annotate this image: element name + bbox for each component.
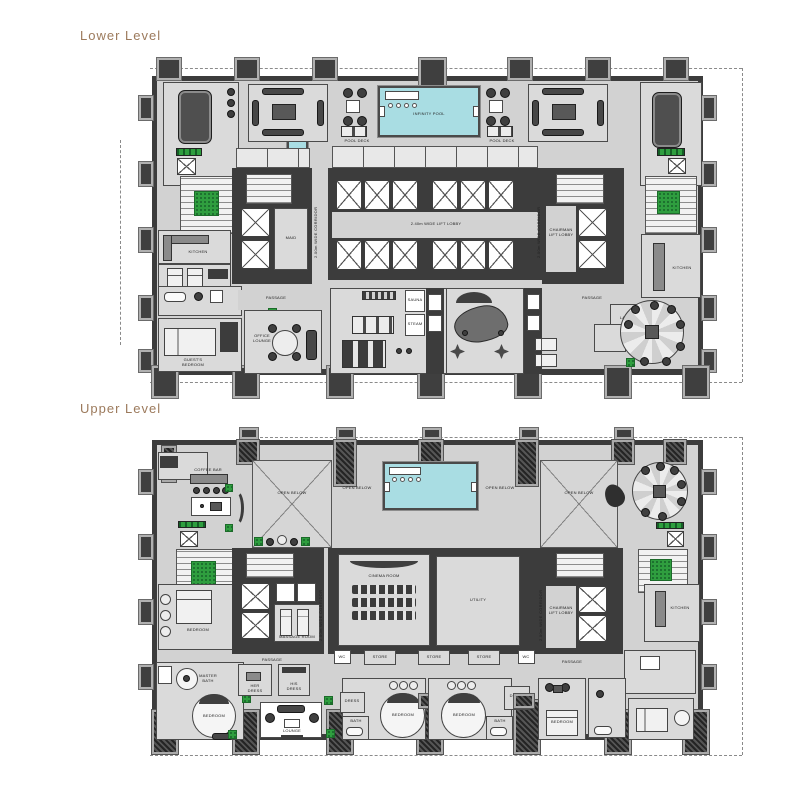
lounge-chair <box>343 116 353 126</box>
side-table <box>160 610 171 621</box>
pilaster-west <box>139 96 153 120</box>
boundary-dash-left <box>120 140 121 345</box>
lounge-table <box>552 104 576 120</box>
lounge-chair <box>486 116 496 126</box>
kitchen-label: KITCHEN <box>189 250 208 255</box>
stool <box>227 88 235 96</box>
store-label: STORE <box>477 655 492 660</box>
chairman-lobby-label: CHAIRMAN LIFT LOBBY <box>549 228 574 238</box>
pilaster-east <box>702 665 716 689</box>
guest-bedroom-label: GUEST'S BEDROOM <box>182 358 204 368</box>
sitting-table <box>653 485 666 498</box>
chair <box>631 305 640 314</box>
office-lounge-label: OFFICE LOUNGE <box>253 334 271 344</box>
bathtub <box>164 292 186 302</box>
shower <box>527 315 540 331</box>
chair <box>292 324 301 333</box>
sofa <box>306 330 317 360</box>
east-suite-room <box>624 650 696 694</box>
shower <box>428 294 442 311</box>
wc-label: WC <box>522 655 529 660</box>
cinema-seats-row <box>352 598 416 607</box>
stool <box>290 538 298 546</box>
pool-steps <box>379 106 385 117</box>
sauna-label: SAUNA <box>408 298 423 303</box>
pilaster-west <box>139 296 153 320</box>
pilaster-west <box>139 665 153 689</box>
chair <box>640 357 649 366</box>
open-below-label: OPEN BELOW <box>343 486 372 491</box>
lounge-chair <box>486 88 496 98</box>
plant <box>225 484 233 492</box>
column <box>313 58 337 80</box>
planter <box>657 148 685 156</box>
core-stair <box>246 553 294 578</box>
column <box>586 58 610 80</box>
bedroom-label: BEDROOM <box>203 714 225 719</box>
side-table <box>277 535 287 545</box>
maid-label: MAID <box>286 236 297 241</box>
kitchen-east <box>641 234 701 298</box>
lounge-chair <box>357 116 367 126</box>
sofa <box>597 100 604 126</box>
boundary-dash-top <box>255 437 742 438</box>
lift <box>241 240 270 269</box>
pool-loungers <box>341 126 367 137</box>
bath-label: BATH <box>350 719 361 724</box>
weight <box>396 348 402 354</box>
pool-steps <box>473 106 479 117</box>
pilaster-east <box>702 296 716 320</box>
chair <box>641 508 650 517</box>
column-cap <box>423 428 441 439</box>
boundary-dash-right <box>742 68 743 382</box>
bedroom-label: BEDROOM <box>392 713 414 718</box>
core-stair <box>556 553 604 578</box>
service-cells <box>332 146 538 168</box>
dress-island <box>246 672 261 681</box>
side-table <box>346 100 360 113</box>
shower <box>428 315 442 332</box>
pilaster-west <box>139 535 153 559</box>
pendant <box>467 681 476 690</box>
boundary-dash-bottom <box>150 755 742 756</box>
pool-jet <box>416 477 421 482</box>
pilaster-east <box>702 96 716 120</box>
cinema-room-label: CINEMA ROOM <box>368 574 399 579</box>
lounge-table <box>272 104 296 120</box>
wc-fixture <box>194 292 203 301</box>
massage-table <box>297 609 309 636</box>
core-stair <box>246 174 292 204</box>
column <box>508 58 532 80</box>
stool <box>193 487 200 494</box>
cinema-seats-row <box>352 585 416 594</box>
lounge-chair <box>500 116 510 126</box>
plant <box>194 191 219 216</box>
coffee-bar-label: COFFEE BAR <box>194 468 222 473</box>
plant <box>626 358 635 367</box>
chair <box>670 466 679 475</box>
planter <box>176 148 202 156</box>
side-table <box>553 685 563 693</box>
corridor-label-west: 2.00m WIDE CORRIDOR <box>313 196 321 258</box>
her-dress-label: HER DRESS <box>248 684 263 694</box>
passage-label: PASSAGE <box>562 660 582 665</box>
column <box>664 440 686 464</box>
sofa <box>542 88 584 95</box>
chair <box>667 305 676 314</box>
chair <box>309 713 319 723</box>
lift <box>460 240 486 270</box>
massage-table <box>280 609 292 636</box>
lounge-chair <box>357 88 367 98</box>
stool <box>227 110 235 118</box>
corridor-label-west: 2.00m WIDE CORRIDOR <box>318 583 326 641</box>
lift <box>392 240 418 270</box>
shower-drain <box>183 675 190 682</box>
pool-deck-label: POOL DECK <box>345 139 370 144</box>
steam-label: STEAM <box>408 322 423 327</box>
plant <box>657 191 680 214</box>
pool-jet <box>412 103 417 108</box>
pool-jet <box>396 103 401 108</box>
pool-jet <box>392 477 397 482</box>
dress-label: DRESS <box>345 699 360 704</box>
treadmills <box>342 340 386 368</box>
pool-jet <box>404 103 409 108</box>
open-below-label: OPEN BELOW <box>278 491 307 496</box>
curved-sofa <box>228 490 244 526</box>
chair <box>292 352 301 361</box>
bathtub <box>490 727 507 736</box>
sofa <box>542 129 584 136</box>
pendant <box>389 681 398 690</box>
bedroom-label: BEDROOM <box>187 628 209 633</box>
lift <box>241 612 270 639</box>
weight <box>406 348 412 354</box>
stool <box>213 487 220 494</box>
kitchen-label: KITCHEN <box>673 266 692 271</box>
shaft <box>177 158 196 175</box>
chair <box>676 342 685 351</box>
plant <box>324 696 333 705</box>
chair <box>662 357 671 366</box>
lounge-chair <box>500 88 510 98</box>
chair <box>268 352 277 361</box>
planter <box>178 521 206 528</box>
pool-jet <box>400 477 405 482</box>
shaft <box>667 531 684 547</box>
lounge-label: LOUNGE <box>283 729 301 734</box>
chair <box>677 497 686 506</box>
store-label: STORE <box>373 655 388 660</box>
bed <box>636 708 668 732</box>
boundary-dash-right <box>742 437 743 755</box>
stool <box>227 99 235 107</box>
shower <box>210 290 223 303</box>
guest-bed <box>164 328 216 356</box>
chairman-lobby-label: CHAIRMAN LIFT LOBBY <box>549 606 574 616</box>
column <box>514 694 534 708</box>
pilaster-west <box>139 228 153 252</box>
core-stair <box>556 174 604 204</box>
chair <box>268 324 277 333</box>
pilaster-west <box>139 600 153 624</box>
utility-label: UTILITY <box>470 598 486 603</box>
chairman-lobby <box>546 586 576 648</box>
gym-benches <box>352 316 394 334</box>
column <box>664 58 688 80</box>
chairman-lobby <box>546 206 576 272</box>
lift <box>336 180 362 210</box>
sofa <box>317 100 324 126</box>
pool-loungers <box>487 126 513 137</box>
side-table <box>160 594 171 605</box>
chair <box>658 512 667 521</box>
passage-label: PASSAGE <box>262 658 282 663</box>
column-cap <box>337 428 355 439</box>
lift <box>578 586 607 613</box>
pool-steps <box>471 482 477 492</box>
pilaster-south <box>683 366 709 398</box>
lounge-table <box>284 719 300 728</box>
sofa <box>252 100 259 126</box>
corridor-label-east: 2.00m WIDE CORRIDOR <box>536 196 544 258</box>
pilaster-east <box>702 535 716 559</box>
spa-bench <box>389 467 421 475</box>
pilaster-east <box>702 600 716 624</box>
passage-label: PASSAGE <box>582 296 602 301</box>
pool-jet <box>388 103 393 108</box>
stool <box>462 330 468 336</box>
plant <box>326 729 335 738</box>
lift <box>241 583 270 610</box>
cinema-seats-row <box>352 611 416 620</box>
kitchen-counter <box>163 235 172 261</box>
dining-table <box>645 325 659 339</box>
chair <box>676 320 685 329</box>
lift <box>488 180 514 210</box>
column <box>334 440 356 486</box>
wc <box>158 666 172 684</box>
plant <box>228 730 237 739</box>
massage-room-label: MASSAGE ROOM <box>279 635 315 640</box>
sofa <box>532 100 539 126</box>
upper-level-title: Upper Level <box>80 401 161 416</box>
pilaster-east <box>702 228 716 252</box>
column-cap <box>240 428 258 439</box>
lift <box>460 180 486 210</box>
lift <box>336 240 362 270</box>
closet-rail <box>282 667 306 673</box>
side-table <box>489 100 503 113</box>
lift <box>432 240 458 270</box>
sofa <box>262 129 304 136</box>
pendant <box>447 681 456 690</box>
conference-table <box>178 90 212 144</box>
wardrobe <box>208 269 228 279</box>
planter <box>656 522 684 529</box>
stool <box>498 330 504 336</box>
pilaster-west <box>139 162 153 186</box>
sofa <box>262 88 304 95</box>
lift <box>578 240 607 269</box>
pool-jet <box>408 477 413 482</box>
kitchen-island <box>655 591 666 627</box>
pilaster-east <box>702 470 716 494</box>
bath-label: BATH <box>494 719 505 724</box>
round-chair <box>674 710 690 726</box>
side-table <box>160 626 171 637</box>
passage-label: PASSAGE <box>266 296 286 301</box>
chair <box>624 320 633 329</box>
column <box>235 58 259 80</box>
lift-lobby-label: 2.40m WIDE LIFT LOBBY <box>411 222 462 227</box>
billiard-ball <box>200 504 204 508</box>
lift <box>364 240 390 270</box>
conference-table <box>652 92 682 148</box>
fixture <box>640 656 660 670</box>
plant <box>225 524 233 532</box>
column-cap <box>615 428 633 439</box>
wc <box>297 583 316 602</box>
bedroom-label: BEDROOM <box>453 713 475 718</box>
bathtub <box>594 726 612 735</box>
wc <box>276 583 295 602</box>
bed <box>176 590 212 624</box>
shower <box>527 294 540 310</box>
tv-console <box>281 735 303 739</box>
shaft <box>668 158 686 174</box>
coffee-counter <box>190 474 228 484</box>
master-bath-label: MASTER BATH <box>199 674 217 684</box>
kitchen-label: KITCHEN <box>671 606 690 611</box>
treatment-bed <box>535 354 557 367</box>
wc-label: WC <box>338 655 345 660</box>
open-below-label: OPEN BELOW <box>486 486 515 491</box>
cabinet <box>160 456 178 468</box>
pendant <box>457 681 466 690</box>
pendant <box>399 681 408 690</box>
plant <box>254 537 263 546</box>
column-cap <box>520 428 538 439</box>
chair <box>650 301 659 310</box>
column <box>516 440 538 486</box>
chair <box>265 713 275 723</box>
pilaster-west <box>139 350 153 372</box>
chair <box>656 462 665 471</box>
kitchen-island <box>653 243 665 291</box>
pool-deck-label: POOL DECK <box>490 139 515 144</box>
void-west <box>252 460 332 548</box>
wc-fixture <box>596 690 604 698</box>
bathtub <box>346 727 363 736</box>
lift <box>364 180 390 210</box>
west-wall <box>152 76 157 374</box>
lounge-chair <box>343 88 353 98</box>
billiard-rack <box>210 502 222 511</box>
plant <box>301 537 310 546</box>
void-east <box>540 460 618 548</box>
bedroom-label: BEDROOM <box>551 720 573 725</box>
floor-plan-page: Lower Level Upper Level POOL DECKINFINIT… <box>0 0 800 800</box>
store-label: STORE <box>427 655 442 660</box>
his-dress-label: HIS DRESS <box>287 682 302 692</box>
pendant <box>409 681 418 690</box>
spa-bench <box>385 91 419 100</box>
shaft <box>180 531 198 547</box>
lift <box>578 208 607 237</box>
lift <box>241 208 270 237</box>
sofa <box>277 705 305 713</box>
column <box>157 58 181 80</box>
stool <box>203 487 210 494</box>
lift <box>578 615 607 642</box>
pilaster-east <box>702 162 716 186</box>
weight-rack <box>362 291 396 300</box>
pilaster-south <box>605 366 631 398</box>
kitchen <box>644 584 700 642</box>
wardrobe <box>220 322 238 352</box>
plant <box>650 559 672 581</box>
chair <box>641 466 650 475</box>
infinity-pool-label: INFINITY POOL <box>413 112 444 117</box>
pool-steps <box>384 482 390 492</box>
open-below-label: OPEN BELOW <box>565 491 594 496</box>
service-cells <box>236 148 310 168</box>
chair <box>677 480 686 489</box>
treatment-bed <box>535 338 557 351</box>
pilaster-west <box>139 470 153 494</box>
lower-level-title: Lower Level <box>80 28 161 43</box>
lift <box>432 180 458 210</box>
plant <box>191 561 216 586</box>
lift <box>392 180 418 210</box>
stool <box>266 538 274 546</box>
lift <box>488 240 514 270</box>
